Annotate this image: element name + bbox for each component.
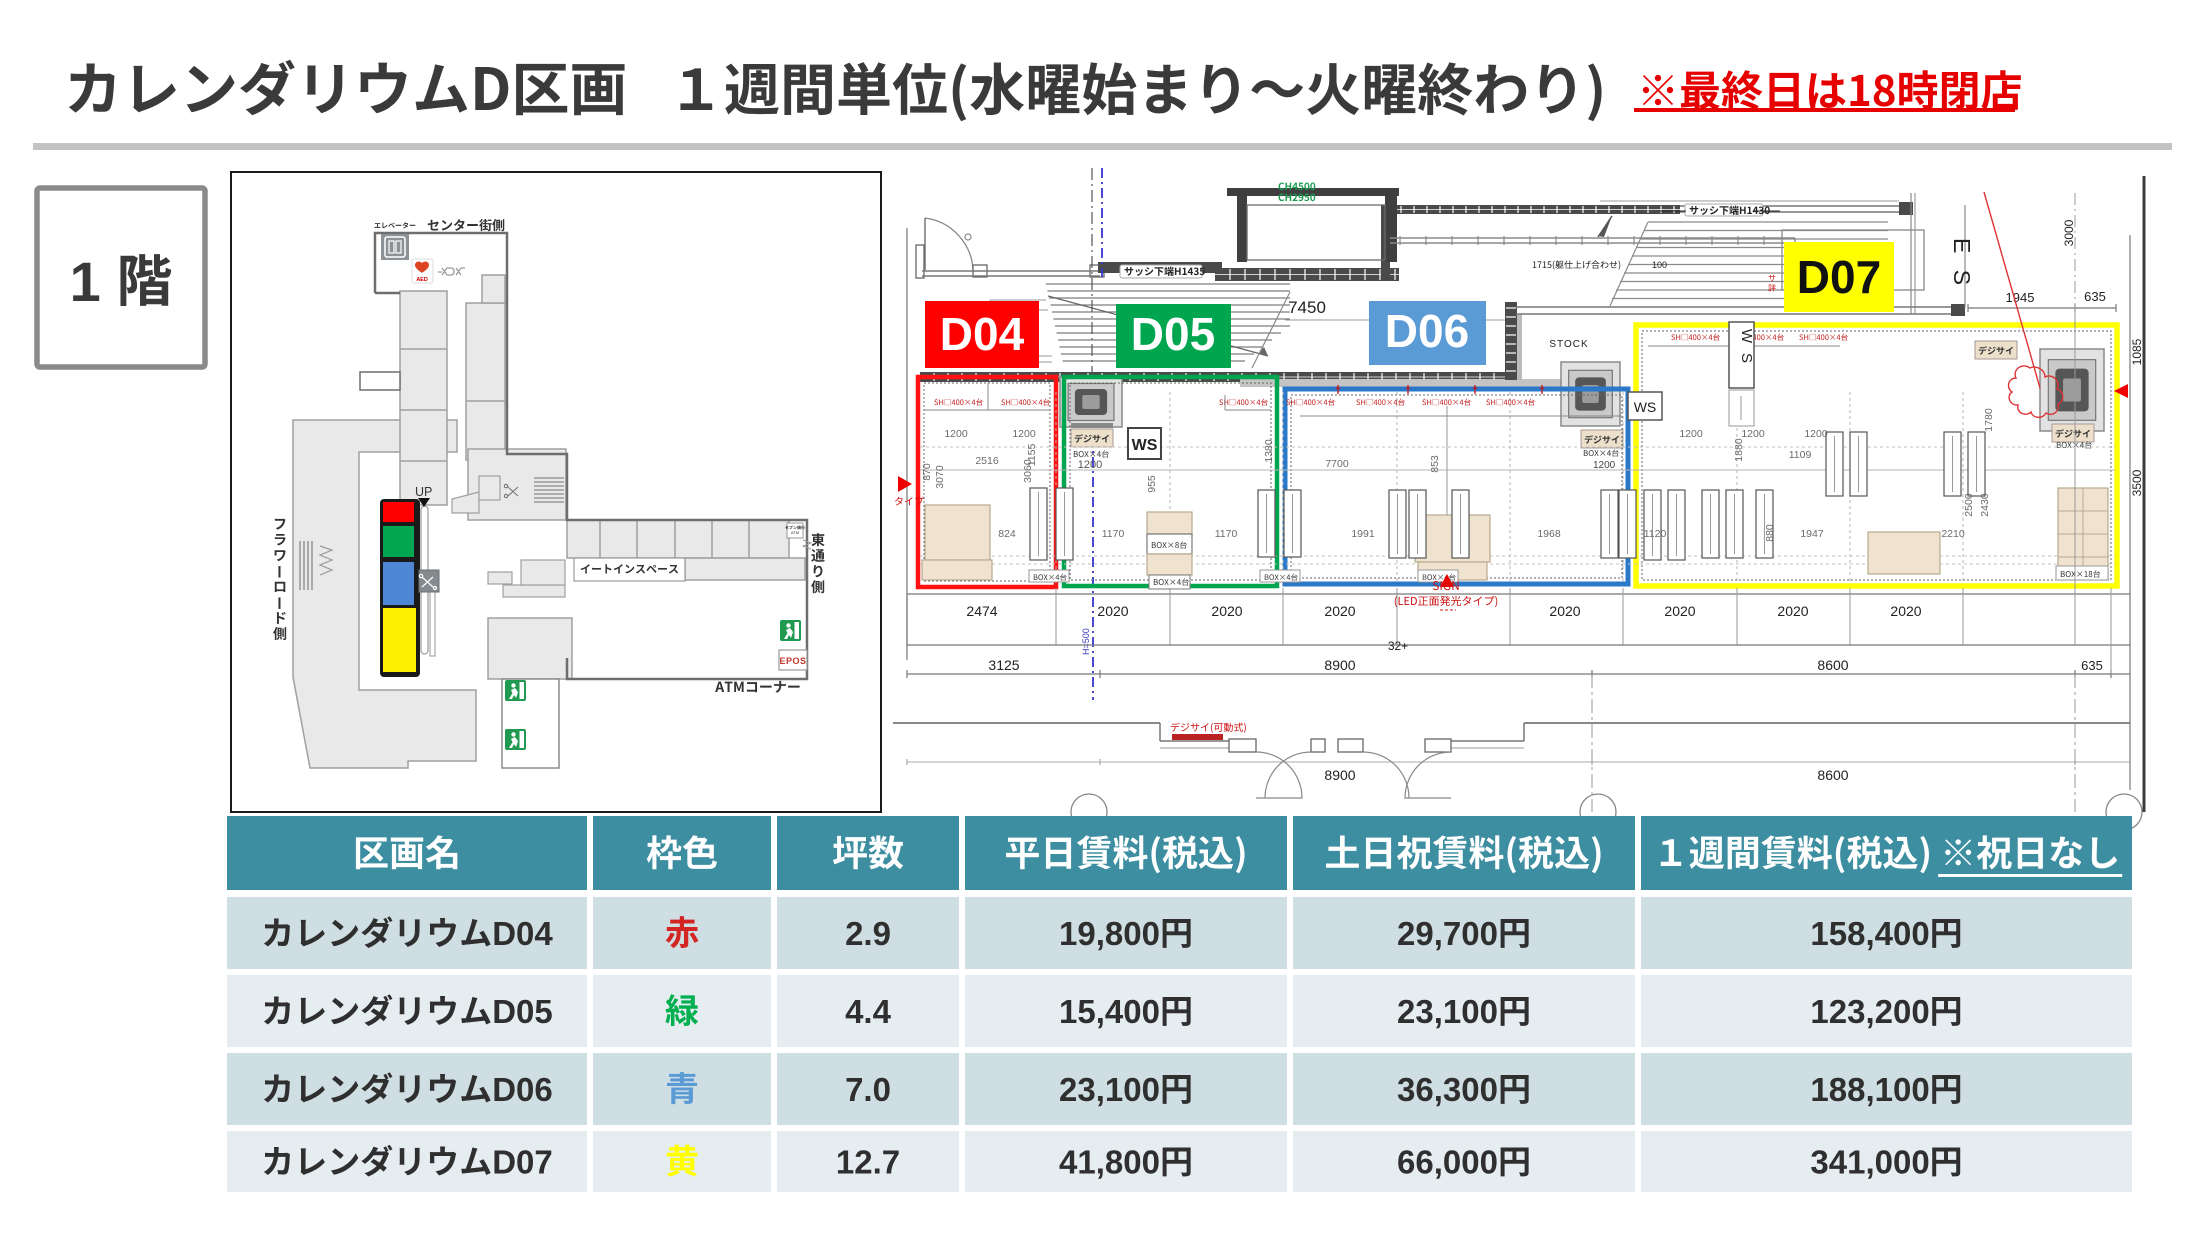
svg-text:635: 635 <box>2081 658 2103 673</box>
svg-text:2500: 2500 <box>1963 493 1975 517</box>
svg-text:D04: D04 <box>492 915 553 952</box>
svg-text:3125: 3125 <box>988 657 1019 673</box>
svg-text:1200: 1200 <box>1741 428 1765 440</box>
svg-text:1200: 1200 <box>1012 428 1036 440</box>
svg-text:1200: 1200 <box>1593 460 1616 471</box>
svg-text:19,800: 19,800 <box>1059 915 1160 952</box>
svg-text:2020: 2020 <box>1549 603 1580 619</box>
svg-text:2.9: 2.9 <box>845 915 891 952</box>
svg-text:123,200: 123,200 <box>1810 993 1929 1030</box>
svg-text:1991: 1991 <box>1351 528 1375 540</box>
svg-text:158,400: 158,400 <box>1810 915 1929 952</box>
svg-text:2516: 2516 <box>975 455 999 467</box>
svg-text:2020: 2020 <box>1890 603 1921 619</box>
svg-text:D06: D06 <box>492 1071 553 1108</box>
svg-text:D07: D07 <box>492 1144 553 1181</box>
svg-text:S: S <box>1738 353 1755 363</box>
svg-text:H=500: H=500 <box>1081 628 1091 655</box>
svg-text:341,000: 341,000 <box>1810 1144 1929 1181</box>
svg-text:1200: 1200 <box>944 428 968 440</box>
svg-text:3500: 3500 <box>2130 469 2144 496</box>
svg-text:1200: 1200 <box>1679 428 1703 440</box>
svg-text:12.7: 12.7 <box>836 1144 900 1181</box>
svg-text:1780: 1780 <box>1983 408 1995 432</box>
svg-text:824: 824 <box>998 528 1016 540</box>
svg-text:1120: 1120 <box>1644 528 1667 540</box>
svg-text:2474: 2474 <box>966 603 997 619</box>
svg-text:1200: 1200 <box>1804 428 1828 440</box>
svg-text:E S: E S <box>1949 238 1975 290</box>
svg-text:23,100: 23,100 <box>1397 993 1498 1030</box>
svg-text:EPOS: EPOS <box>779 656 806 666</box>
svg-text:7.0: 7.0 <box>845 1071 891 1108</box>
svg-text:1380: 1380 <box>1263 439 1275 463</box>
svg-text:870: 870 <box>921 463 933 481</box>
svg-text:3070: 3070 <box>934 465 946 489</box>
svg-text:D07: D07 <box>1797 251 1881 303</box>
svg-text:2020: 2020 <box>1324 603 1355 619</box>
svg-text:STOCK: STOCK <box>1549 339 1588 350</box>
svg-text:WS: WS <box>1634 399 1657 415</box>
svg-text:WS: WS <box>1132 437 1158 454</box>
svg-text:W: W <box>1738 329 1755 344</box>
svg-text:1945: 1945 <box>2006 290 2035 305</box>
svg-text:3000: 3000 <box>2062 219 2076 246</box>
svg-text:2020: 2020 <box>1777 603 1808 619</box>
svg-text:1947: 1947 <box>1800 528 1824 540</box>
svg-text:23,100: 23,100 <box>1059 1071 1160 1108</box>
svg-text:AED: AED <box>416 277 428 283</box>
svg-text:1109: 1109 <box>1789 449 1812 461</box>
svg-text:4.4: 4.4 <box>845 993 892 1030</box>
svg-text:D05: D05 <box>492 993 553 1030</box>
svg-text:66,000: 66,000 <box>1397 1144 1498 1181</box>
svg-text:1: 1 <box>70 250 101 313</box>
svg-text:1085: 1085 <box>2130 338 2144 365</box>
svg-text:29,700: 29,700 <box>1397 915 1498 952</box>
svg-text:2210: 2210 <box>1941 528 1965 540</box>
svg-text:880: 880 <box>1764 524 1776 542</box>
svg-text:UP: UP <box>415 485 432 499</box>
svg-text:635: 635 <box>2084 289 2106 304</box>
svg-text:8900: 8900 <box>1324 657 1355 673</box>
svg-text:7450: 7450 <box>1288 298 1326 317</box>
svg-text:2020: 2020 <box>1664 603 1695 619</box>
svg-text:1200: 1200 <box>1078 459 1102 471</box>
svg-text:3060: 3060 <box>1022 459 1034 483</box>
svg-text:8600: 8600 <box>1817 657 1848 673</box>
svg-text:1968: 1968 <box>1537 528 1561 540</box>
svg-text:853: 853 <box>1429 455 1441 473</box>
svg-text:2020: 2020 <box>1211 603 1242 619</box>
svg-text:15,400: 15,400 <box>1059 993 1160 1030</box>
svg-text:1170: 1170 <box>1215 528 1238 540</box>
svg-text:8900: 8900 <box>1324 767 1355 783</box>
svg-text:955: 955 <box>1146 475 1158 493</box>
svg-text:41,800: 41,800 <box>1059 1144 1160 1181</box>
svg-text:2430: 2430 <box>1979 493 1991 517</box>
svg-text:8600: 8600 <box>1817 767 1848 783</box>
svg-text:7700: 7700 <box>1325 458 1349 470</box>
svg-text:2020: 2020 <box>1097 603 1128 619</box>
svg-text:D04: D04 <box>940 308 1025 360</box>
svg-text:188,100: 188,100 <box>1810 1071 1929 1108</box>
svg-text:32+: 32+ <box>1388 639 1408 653</box>
svg-text:ATM: ATM <box>791 530 799 535</box>
svg-text:D05: D05 <box>1131 308 1215 360</box>
svg-text:D06: D06 <box>1385 305 1469 357</box>
svg-text:100: 100 <box>1652 260 1667 270</box>
svg-text:1170: 1170 <box>1102 528 1125 540</box>
svg-text:36,300: 36,300 <box>1397 1071 1498 1108</box>
svg-text:1880: 1880 <box>1733 438 1745 462</box>
